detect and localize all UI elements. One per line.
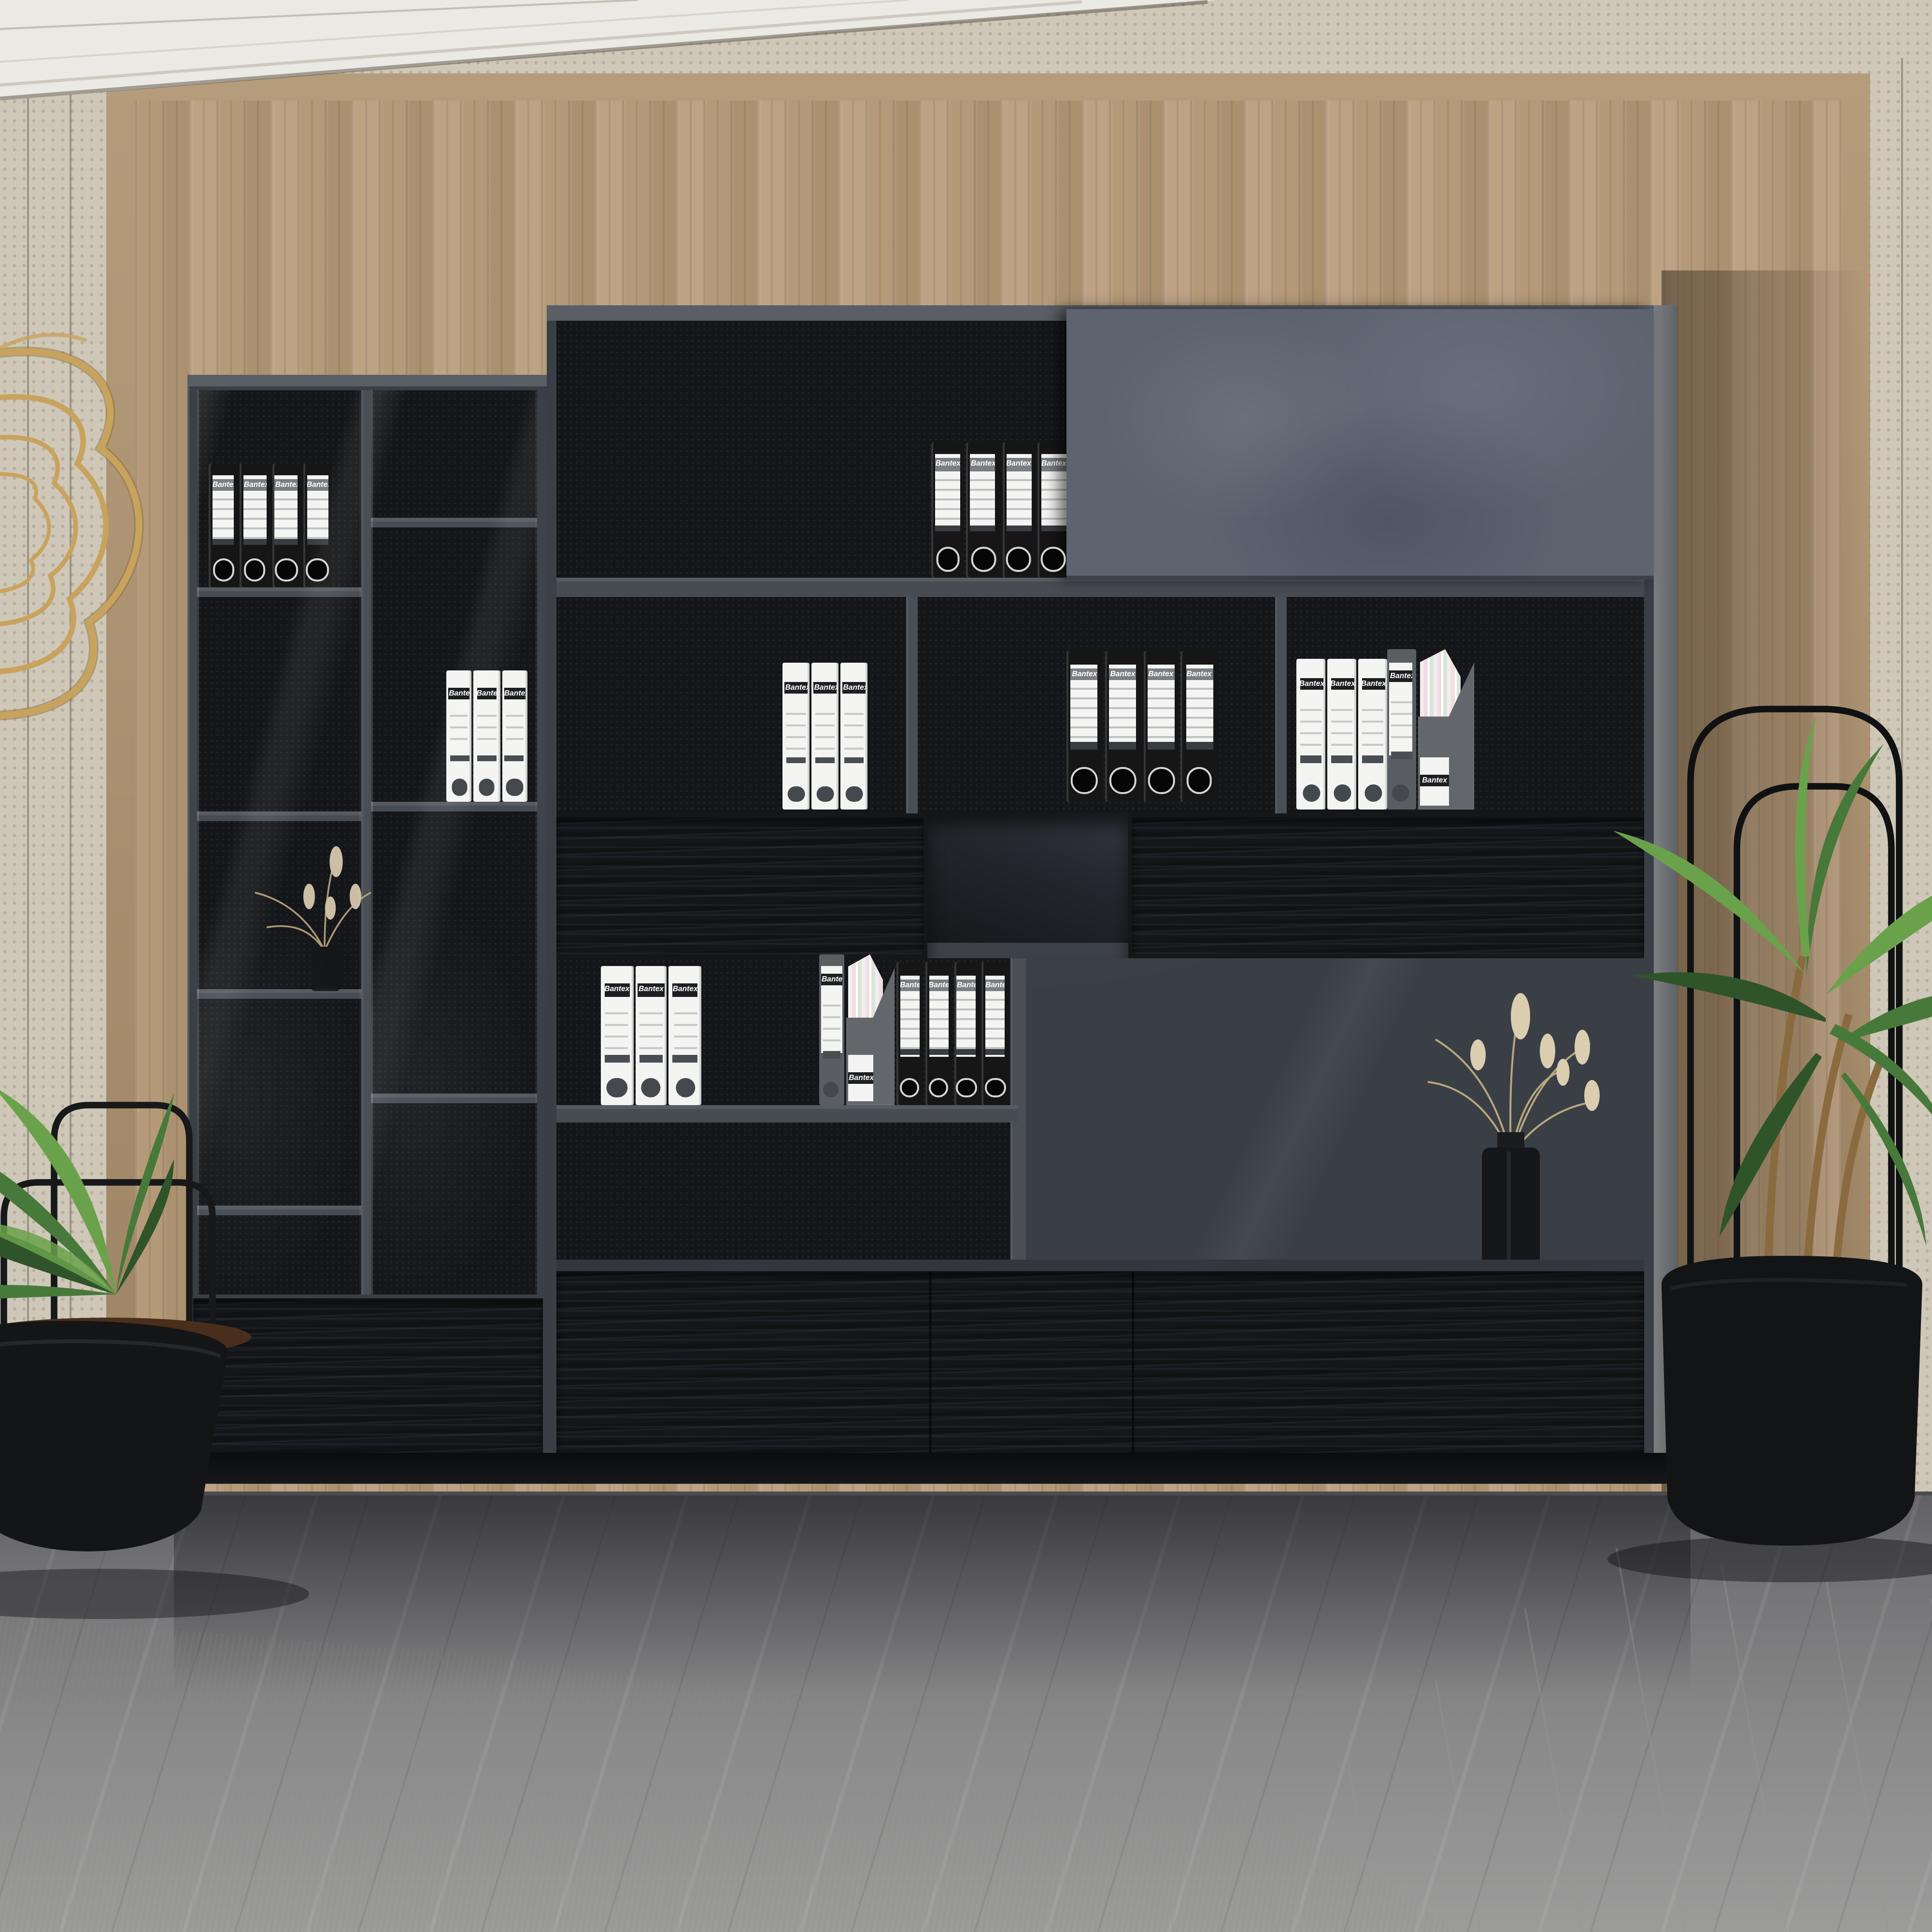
magazine-file: Bantex: [1418, 649, 1475, 810]
black-binder: Bantex: [931, 442, 965, 578]
binder-group: BantexBantexBantex: [446, 670, 527, 802]
binder-group: BantexBantexBantexBantex: [1066, 651, 1217, 802]
sliding-door[interactable]: [1066, 309, 1654, 580]
black-binder: Bantex: [1143, 651, 1179, 802]
white-binder: Bantex: [1296, 659, 1325, 810]
black-binder: Bantex: [953, 962, 980, 1105]
white-binder: Bantex: [1358, 659, 1387, 810]
white-binder: Bantex: [669, 966, 701, 1105]
binder-group: BantexBantexBantexBantex: [896, 962, 1009, 1105]
plinth-shadow: [187, 1453, 1677, 1484]
white-binder: Bantex: [782, 663, 810, 810]
black-binder: Bantex: [1002, 442, 1035, 578]
drawer-front[interactable]: [556, 817, 923, 954]
potted-palm-left: [0, 1005, 386, 1642]
crown-molding: [0, 0, 1275, 116]
office-scene: BantexBantexBantexBantex BantexBantexBan…: [0, 0, 1932, 1932]
glass-cabinet-top-edge: [187, 375, 547, 386]
black-binder: Bantex: [896, 962, 923, 1105]
black-binder: Bantex: [1105, 651, 1141, 802]
base-top-edge: [556, 1260, 1644, 1271]
gray-binder: Bantex: [819, 954, 844, 1105]
black-binder: Bantex: [1037, 442, 1070, 578]
binder-group: BantexBantex: [819, 954, 896, 1105]
black-binder: Bantex: [1181, 651, 1217, 802]
drawer-seam: [1132, 1271, 1134, 1453]
base-drawers[interactable]: [556, 1271, 1644, 1453]
white-binder: Bantex: [601, 966, 633, 1105]
shelf-divider: [1275, 597, 1287, 813]
potted-palm-right: [1575, 667, 1932, 1594]
drawer-front[interactable]: [1132, 817, 1644, 954]
white-binder: Bantex: [840, 663, 867, 810]
white-binder: Bantex: [1327, 659, 1356, 810]
drawer-seam: [929, 1271, 931, 1453]
gray-binder: Bantex: [1387, 649, 1416, 810]
binder-group: BantexBantexBantex: [782, 663, 867, 810]
shelf-board: [556, 578, 1644, 597]
black-binder: Bantex: [925, 962, 952, 1105]
binder-group: BantexBantexBantex: [601, 966, 701, 1105]
binder-group: BantexBantex: [1387, 649, 1476, 810]
screenshot: BantexBantexBantexBantex BantexBantexBan…: [0, 0, 1932, 1932]
white-binder: Bantex: [635, 966, 668, 1105]
black-binder: Bantex: [966, 442, 1000, 578]
binder-group: BantexBantexBantex: [1296, 659, 1387, 810]
shelf-divider: [906, 597, 918, 813]
magazine-file: Bantex: [846, 954, 895, 1105]
shelf-board: [556, 1105, 1018, 1122]
black-binder: Bantex: [982, 962, 1009, 1105]
binder-group: BantexBantexBantexBantex: [931, 442, 1070, 578]
black-binder: Bantex: [1066, 651, 1103, 802]
glass-door-right[interactable]: [371, 390, 537, 1294]
white-binder: Bantex: [811, 663, 838, 810]
open-cube-niche: [927, 813, 1128, 958]
